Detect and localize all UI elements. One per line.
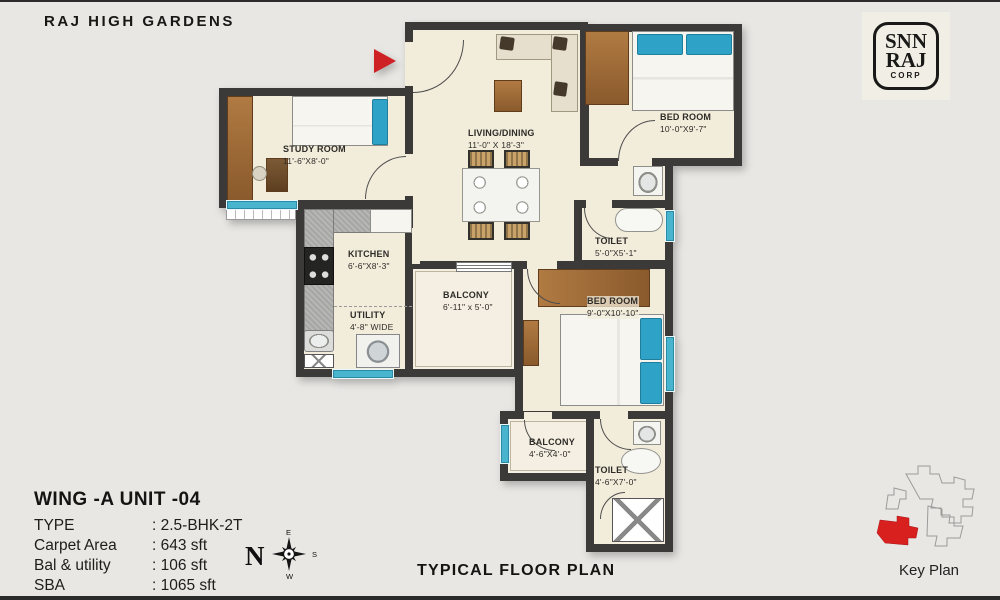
room-label-living: LIVING/DINING 11'-0" X 18'-3" — [468, 128, 535, 151]
dining-chair-2 — [504, 150, 530, 168]
utility-sink-icon — [304, 330, 334, 352]
entry-arrow-icon — [374, 49, 396, 73]
dining-chair-4 — [504, 222, 530, 240]
room-name: LIVING/DINING — [468, 128, 535, 140]
room-dim: 10'-0"X9'-7" — [660, 124, 711, 135]
bedroom1-pillow-2 — [686, 34, 732, 55]
room-label-utility: UTILITY 4'-8" WIDE — [350, 310, 393, 333]
room-dim: 4'-8" WIDE — [350, 322, 393, 333]
room-name: UTILITY — [350, 310, 393, 322]
toilet1-window — [665, 210, 675, 242]
dining-chair-1 — [468, 150, 494, 168]
balcony2-window — [500, 424, 510, 464]
room-name: BED ROOM — [587, 296, 639, 308]
sofa-cushion-3 — [553, 81, 568, 97]
kitchen-door-gap — [412, 228, 420, 264]
utility-tile — [304, 354, 334, 368]
toilet1-wc-icon — [615, 208, 663, 232]
room-dim: 4'-6"X4'-0" — [529, 449, 575, 460]
room-label-balcony2: BALCONY 4'-6"X4'-0" — [529, 437, 575, 460]
room-dim: 6'-11" x 5'-0" — [443, 302, 493, 313]
toilet1-door-gap — [586, 200, 612, 208]
room-label-study: STUDY ROOM 11'-6"X8'-0" — [283, 144, 346, 167]
room-dim: 9'-0"X10'-10" — [587, 308, 639, 319]
room-name: BALCONY — [443, 290, 493, 302]
toilet2-door-gap — [600, 411, 628, 419]
bedroom2-pillow-1 — [640, 318, 662, 360]
room-dim: 11'-0" X 18'-3" — [468, 140, 535, 151]
kitchen-cabinet — [370, 209, 412, 233]
room-name: BED ROOM — [660, 112, 711, 124]
stove-icon — [304, 247, 334, 285]
utility-window — [332, 369, 394, 379]
wash-basin-1-icon — [633, 166, 663, 196]
dining-chair-3 — [468, 222, 494, 240]
study-door-gap — [405, 154, 413, 196]
study-bed-pillow — [372, 99, 388, 145]
wash-basin-2-icon — [633, 421, 661, 445]
room-dim: 11'-6"X8'-0" — [283, 156, 346, 167]
study-chair — [252, 166, 267, 181]
bedroom1-wardrobe — [585, 31, 629, 105]
entry-door-gap — [405, 42, 413, 86]
sofa-cushion-1 — [499, 36, 515, 51]
floor-plan-page: { "header": { "title": "RAJ HIGH GARDENS… — [0, 0, 1000, 600]
balcony2-door-gap — [524, 412, 552, 420]
room-name: TOILET — [595, 465, 637, 477]
room-label-toilet1: TOILET 5'-0"X5'-1" — [595, 236, 637, 259]
room-label-kitchen: KITCHEN 6'-6"X8'-3" — [348, 249, 390, 272]
floor-plan: STUDY ROOM 11'-6"X8'-0" LIVING/DINING 11… — [0, 0, 1000, 600]
bedroom2-window — [665, 336, 675, 392]
bedroom2-pillow-2 — [640, 362, 662, 404]
study-wardrobe — [227, 96, 253, 202]
room-label-balcony1: BALCONY 6'-11" x 5'-0" — [443, 290, 493, 313]
dining-table — [462, 168, 540, 222]
room-dim: 6'-6"X8'-3" — [348, 261, 390, 272]
room-label-bedroom2: BED ROOM 9'-0"X10'-10" — [587, 296, 639, 319]
room-label-bedroom1: BED ROOM 10'-0"X9'-7" — [660, 112, 711, 135]
balcony1-sliding-door — [456, 262, 512, 272]
washing-machine-icon — [356, 334, 400, 368]
study-window — [226, 200, 298, 210]
room-name: TOILET — [595, 236, 637, 248]
bedroom1-pillow-1 — [637, 34, 683, 55]
room-label-toilet2: TOILET 4'-6"X7'-0" — [595, 465, 637, 488]
room-name: KITCHEN — [348, 249, 390, 261]
coffee-table — [494, 80, 522, 112]
room-name: STUDY ROOM — [283, 144, 346, 156]
bedroom2-dresser — [523, 320, 539, 366]
room-dim: 5'-0"X5'-1" — [595, 248, 637, 259]
room-balcony1 — [405, 261, 522, 377]
room-name: BALCONY — [529, 437, 575, 449]
bedroom2-door-gap — [527, 261, 557, 269]
sofa-cushion-2 — [552, 36, 568, 51]
room-dim: 4'-6"X7'-0" — [595, 477, 637, 488]
